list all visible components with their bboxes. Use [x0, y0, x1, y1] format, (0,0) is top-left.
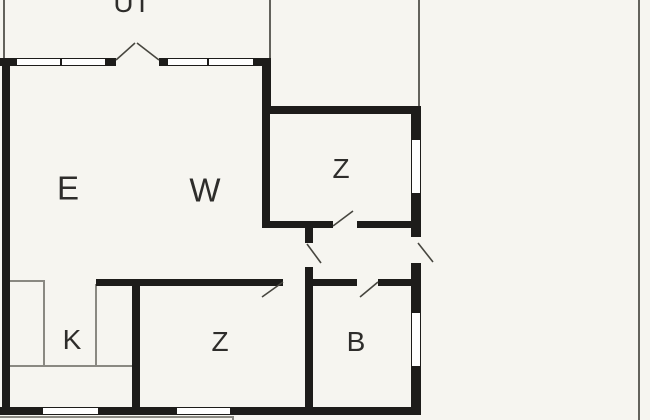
window-right-bedroom-upper — [411, 140, 421, 193]
exterior-wall-top-segment — [105, 58, 116, 66]
outdoor-area-right-line — [638, 0, 640, 420]
room-label-z-upper: Z — [332, 155, 349, 183]
room-label-k: K — [63, 326, 82, 354]
window-mullion — [207, 59, 209, 65]
interior-wall-z-upper-bottom — [357, 221, 421, 228]
interior-wall-z-upper-bottom — [262, 221, 333, 228]
kitchen-boundary-left-line — [43, 280, 45, 366]
window-right-bathroom — [411, 313, 421, 366]
interior-wall-corridor-bottom — [96, 279, 283, 286]
room-label-b: B — [347, 328, 366, 356]
ground-line-vertical — [232, 416, 234, 420]
exterior-door-opening — [411, 237, 421, 263]
room-label-ut: UT — [113, 0, 150, 17]
door-opening-corridor — [305, 243, 313, 267]
terrace-ut-right-line — [269, 0, 271, 58]
door-opening-bathroom — [357, 279, 378, 286]
exterior-wall-bottom-segment — [98, 407, 177, 415]
interior-wall-corridor-divider — [305, 228, 313, 243]
exterior-wall-bottom-segment — [0, 407, 43, 415]
exterior-wall-right-segment — [411, 366, 421, 415]
window-bottom-bedroom — [177, 407, 230, 415]
room-label-z-lower: Z — [211, 328, 228, 356]
interior-wall-kitchen-bedroom-divider — [132, 279, 140, 407]
kitchen-boundary-bottom-line — [5, 365, 133, 367]
door-opening-z-lower — [283, 279, 305, 286]
window-top-right — [168, 58, 253, 66]
outdoor-area-left-line — [418, 0, 420, 108]
terrace-ut-left-line — [3, 0, 5, 58]
exterior-wall-upper-step-horizontal — [262, 106, 421, 114]
room-label-w: W — [189, 174, 220, 207]
room-label-e: E — [57, 172, 79, 205]
interior-wall-z-upper-left — [262, 106, 270, 228]
exterior-wall-right-segment — [411, 193, 421, 237]
interior-wall-bedroom-bathroom-divider — [305, 286, 313, 407]
french-door-opening — [116, 58, 159, 66]
ground-line-horizontal — [0, 416, 233, 418]
door-opening-z-upper — [333, 221, 357, 228]
window-mullion — [60, 59, 62, 65]
interior-wall-corridor-divider — [305, 267, 313, 286]
kitchen-boundary-right-line — [95, 284, 97, 366]
kitchen-boundary-top-line — [5, 280, 44, 282]
interior-wall-corridor-bottom — [378, 279, 421, 286]
exterior-wall-right-segment — [411, 263, 421, 313]
exterior-wall-top-segment — [159, 58, 168, 66]
exterior-wall-left — [2, 58, 10, 415]
window-bottom-kitchen — [43, 407, 98, 415]
exterior-wall-upper-step-vertical — [262, 58, 271, 113]
exterior-wall-bottom-segment — [230, 407, 421, 415]
window-top-left — [17, 58, 105, 66]
floor-plan-canvas: UT E W Z K Z B — [0, 0, 650, 420]
